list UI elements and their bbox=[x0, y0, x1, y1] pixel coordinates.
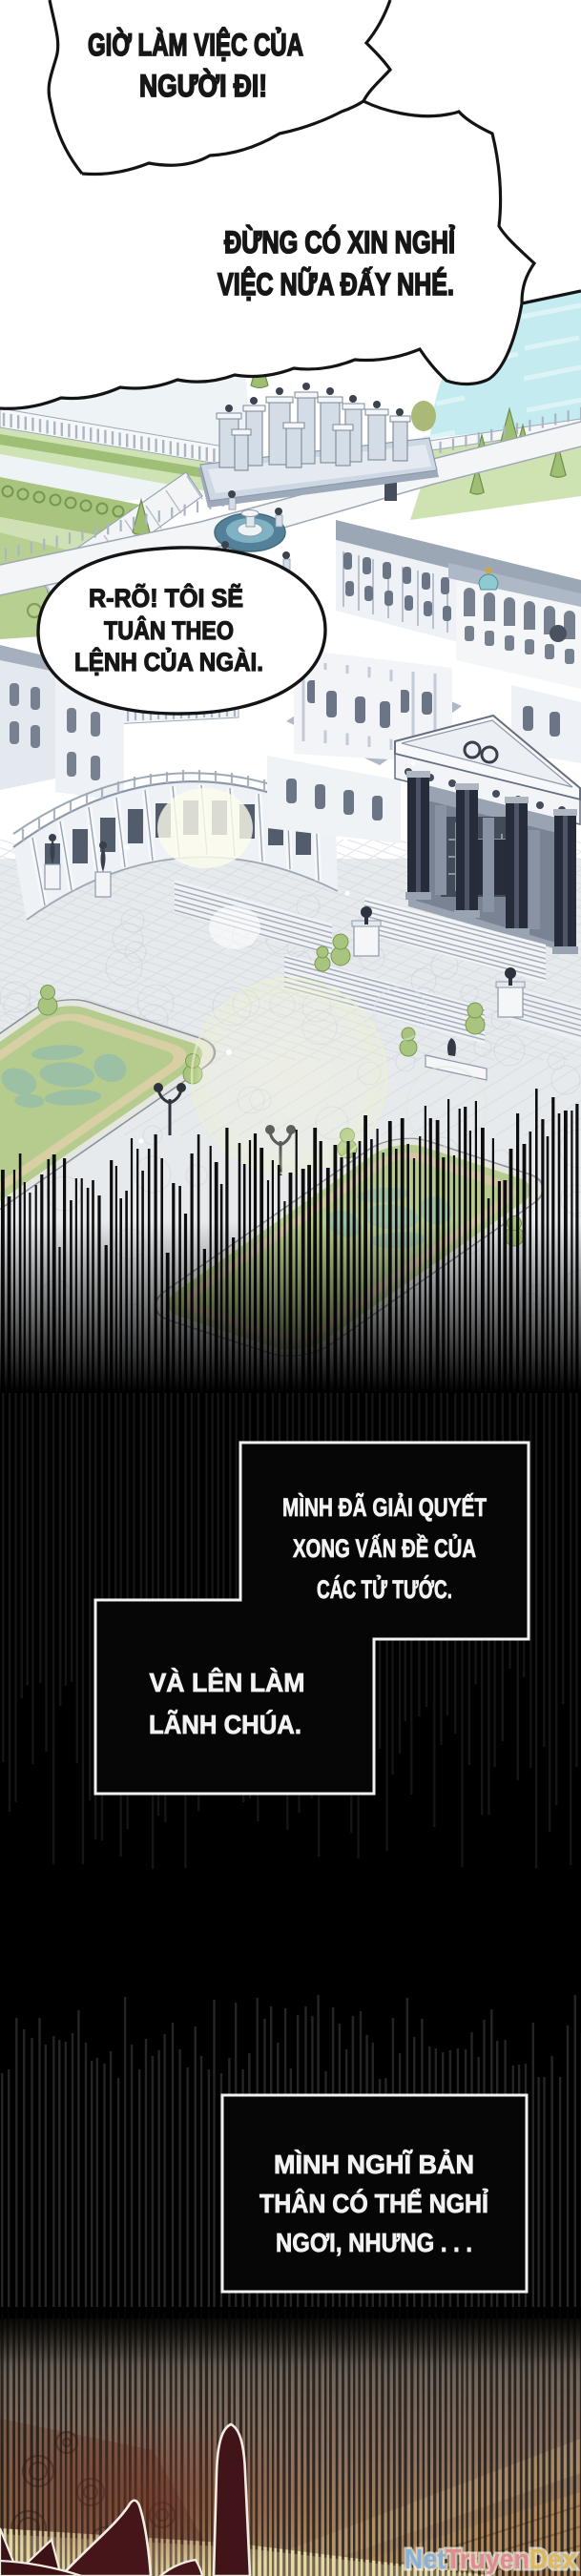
svg-text:NGƠI, NHƯNG . . .: NGƠI, NHƯNG . . . bbox=[276, 2228, 472, 2257]
svg-text:MÌNH ĐÃ GIẢI QUYẾT: MÌNH ĐÃ GIẢI QUYẾT bbox=[282, 1491, 487, 1522]
svg-text:CÁC TỬ TƯỚC.: CÁC TỬ TƯỚC. bbox=[317, 1573, 452, 1604]
svg-text:GIỜ LÀM VIỆC CỦA: GIỜ LÀM VIỆC CỦA bbox=[88, 28, 303, 62]
svg-text:THÂN CÓ THỂ NGHỈ: THÂN CÓ THỂ NGHỈ bbox=[259, 2188, 488, 2218]
svg-text:R-RÕ! TÔI SẼ: R-RÕ! TÔI SẼ bbox=[89, 583, 243, 613]
svg-text:VIỆC NỮA ĐẤY NHÉ.: VIỆC NỮA ĐẤY NHÉ. bbox=[218, 267, 454, 301]
svg-text:LÃNH CHÚA.: LÃNH CHÚA. bbox=[149, 1710, 301, 1739]
svg-text:LỆNH CỦA NGÀI.: LỆNH CỦA NGÀI. bbox=[74, 646, 263, 676]
svg-text:ĐỪNG CÓ XIN NGHỈ: ĐỪNG CÓ XIN NGHỈ bbox=[224, 225, 455, 260]
svg-text:MÌNH NGHĨ BẢN: MÌNH NGHĨ BẢN bbox=[274, 2149, 474, 2179]
svg-text:NetTruyenDex: NetTruyenDex bbox=[405, 2545, 576, 2575]
svg-text:VÀ LÊN LÀM: VÀ LÊN LÀM bbox=[150, 1668, 305, 1697]
svg-text:TUÂN THEO: TUÂN THEO bbox=[104, 615, 234, 645]
svg-text:XONG VẤN ĐỀ CỦA: XONG VẤN ĐỀ CỦA bbox=[293, 1532, 476, 1563]
svg-text:NGƯỜI ĐI!: NGƯỜI ĐI! bbox=[139, 69, 267, 103]
